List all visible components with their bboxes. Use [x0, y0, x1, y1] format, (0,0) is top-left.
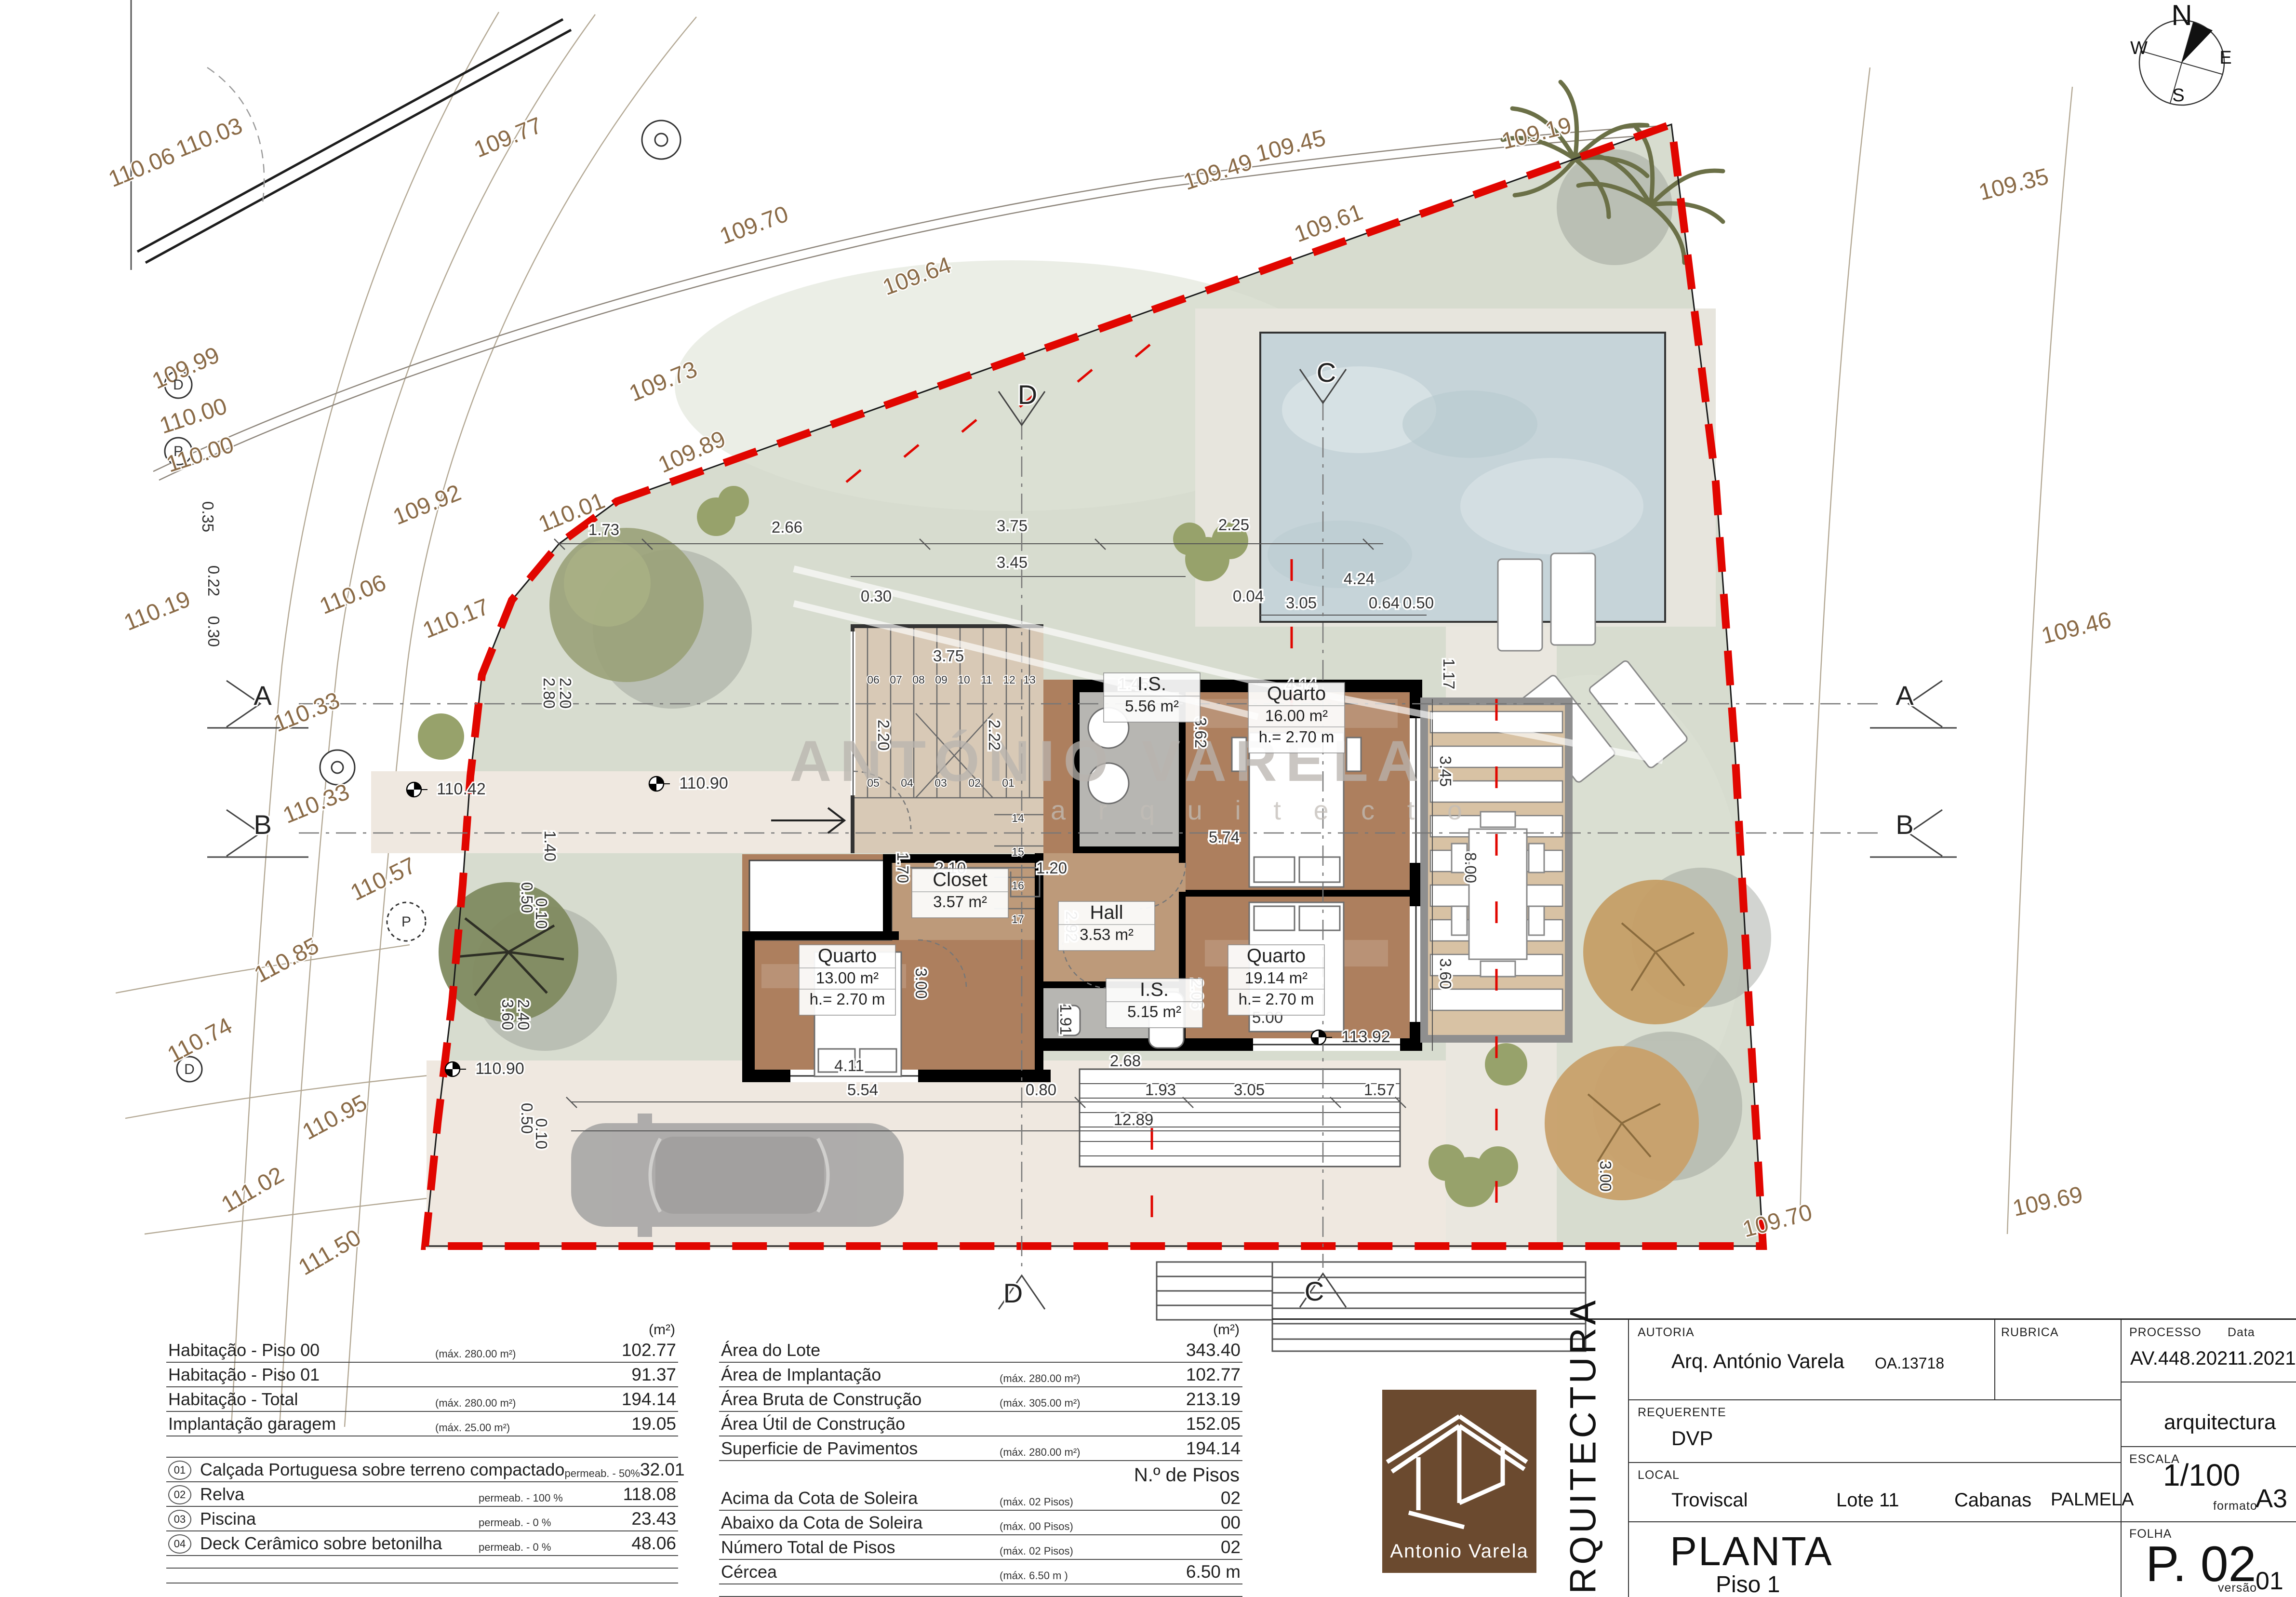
- local-value-1: Troviscal: [1671, 1490, 1748, 1511]
- row-label: Calçada Portuguesa sobre terreno compact…: [200, 1460, 564, 1480]
- dimension-label: 1.91: [1057, 1004, 1075, 1035]
- row-value: 48.06: [599, 1533, 676, 1554]
- drawing-sheet: ANTÓNIO VARELA a r q u i t e c t o 110.0…: [0, 0, 2296, 1597]
- dimension-label: 2.25: [1218, 516, 1249, 534]
- dimension-label: 3.00: [1597, 1161, 1615, 1192]
- stair-number: 01: [1002, 777, 1015, 789]
- doc-title: PLANTA: [1670, 1528, 1833, 1575]
- elevation-label: 110.19: [120, 586, 194, 636]
- section-marker-letter: D: [1003, 1278, 1023, 1308]
- room-label-line: 19.14 m²: [1245, 969, 1308, 987]
- dimension-label: 0.80: [1026, 1081, 1056, 1099]
- row-label: Deck Cerâmico sobre betonilha: [200, 1533, 479, 1554]
- table-row: 03 Piscina permeab. - 0 % 23.43: [166, 1507, 678, 1531]
- row-label: Habitação - Total: [168, 1389, 435, 1409]
- row-value: 102.77: [599, 1340, 676, 1360]
- row-label: Habitação - Piso 01: [168, 1365, 435, 1385]
- divider: [1994, 1320, 1995, 1399]
- table-row: Habitação - Piso 00 (máx. 280.00 m²) 102…: [166, 1338, 678, 1363]
- room-label-line: 5.56 m²: [1125, 697, 1179, 715]
- compass-letters: NESW: [2130, 0, 2232, 106]
- elevation-label: 109.49: [1180, 149, 1255, 195]
- dimension-label: 0.30: [205, 616, 223, 647]
- row-note: (máx. 280.00 m²): [1000, 1372, 1163, 1385]
- section-marker-letter: B: [254, 809, 271, 840]
- dimension-label: 5.54: [847, 1081, 878, 1099]
- room-label: Quarto19.14 m²h.= 2.70 m: [1228, 945, 1324, 1015]
- row-value: 6.50 m: [1163, 1562, 1241, 1582]
- dimension-label: 3.05: [1234, 1081, 1265, 1099]
- vertical-title: ARQUITECTURA: [1542, 1320, 1624, 1597]
- table-row: Habitação - Piso 01 91.37: [166, 1363, 678, 1387]
- stair-number: 03: [934, 777, 947, 789]
- row-value: 118.08: [599, 1484, 676, 1504]
- table-row: Acima da Cota de Soleira (máx. 02 Pisos)…: [719, 1486, 1242, 1511]
- requerente-value: DVP: [1671, 1427, 1713, 1450]
- dimension-label: 3.60: [499, 999, 517, 1030]
- dimension-label: 2.68: [1110, 1052, 1141, 1070]
- room-label: Closet3.57 m²: [912, 869, 1008, 918]
- room-label-line: Quarto: [1247, 945, 1306, 966]
- circle-letter: D: [184, 1061, 195, 1077]
- dimension-label: 4.11: [834, 1057, 864, 1074]
- spot-elevation: 113.92: [1341, 1028, 1390, 1046]
- room-label-line: 13.00 m²: [816, 969, 879, 987]
- escala-value: 1/100: [2163, 1457, 2240, 1493]
- local-value-4: PALMELA: [2051, 1490, 2134, 1510]
- divider: [2121, 1382, 2296, 1382]
- row-label: Superficie de Pavimentos: [721, 1438, 1000, 1459]
- dimension-label: 1.57: [1364, 1081, 1395, 1099]
- stair-number: 04: [901, 777, 913, 789]
- table-row: Superficie de Pavimentos (máx. 280.00 m²…: [719, 1436, 1242, 1461]
- local-label: LOCAL: [1638, 1468, 1680, 1482]
- svg-text:a r q u i t e c t o: a r q u i t e c t o: [1051, 795, 1475, 825]
- compass-letter: N: [2171, 0, 2192, 31]
- section-marker-letter: D: [1018, 379, 1037, 410]
- table-row: 01 Calçada Portuguesa sobre terreno comp…: [166, 1458, 678, 1482]
- row-number: 04: [168, 1534, 191, 1554]
- row-value: 194.14: [1163, 1438, 1241, 1459]
- row-label: Acima da Cota de Soleira: [721, 1488, 1000, 1508]
- room-label-line: I.S.: [1137, 673, 1166, 695]
- room-label-line: 16.00 m²: [1265, 707, 1328, 725]
- dimension-label: 2.20: [557, 678, 574, 709]
- architect-logo: Antonio Varela: [1382, 1390, 1536, 1573]
- autoria-label: AUTORIA: [1638, 1326, 1695, 1340]
- row-value: 32.01: [640, 1460, 685, 1480]
- divider: [2121, 1446, 2296, 1447]
- autoria-value: Arq. António Varela: [1671, 1350, 1844, 1373]
- table-habitacao: (m²) Habitação - Piso 00 (máx. 280.00 m²…: [166, 1322, 678, 1597]
- row-value: 343.40: [1163, 1340, 1241, 1360]
- dimension-label: 0.64: [1369, 594, 1400, 612]
- dimension-label: 1.70: [894, 852, 912, 883]
- table-lote: (m²) Área do Lote 343.40 Área de Implant…: [719, 1322, 1242, 1597]
- stair-number: 13: [1023, 673, 1036, 686]
- row-note: permeab. - 0 %: [479, 1516, 599, 1529]
- elevation-label: 110.85: [250, 933, 323, 988]
- row-label: Habitação - Piso 00: [168, 1340, 435, 1360]
- dimension-label: 0.50: [1403, 594, 1434, 612]
- room-label-line: h.= 2.70 m: [810, 990, 885, 1008]
- row-number: 01: [168, 1461, 191, 1480]
- car: [571, 1114, 904, 1237]
- stair-number: 08: [912, 673, 925, 686]
- dimension-label: 2.20: [875, 720, 893, 751]
- stair-number: 09: [935, 673, 948, 686]
- stair-number: 07: [890, 673, 902, 686]
- room-label-line: I.S.: [1140, 979, 1169, 1000]
- local-value-2: Lote 11: [1836, 1490, 1899, 1511]
- dimension-label: 0.04: [1233, 587, 1264, 605]
- row-label: Cércea: [721, 1562, 1000, 1582]
- dimension-label: 12.89: [1114, 1111, 1154, 1128]
- section-marker-letter: A: [1896, 680, 1914, 711]
- row-note: (máx. 280.00 m²): [435, 1397, 599, 1409]
- table-row: 04 Deck Cerâmico sobre betonilha permeab…: [166, 1531, 678, 1556]
- row-label: Área de Implantação: [721, 1365, 1000, 1385]
- processo-label: PROCESSO: [2129, 1326, 2202, 1340]
- stair-number: 17: [1012, 913, 1024, 926]
- room-label: Quarto13.00 m²h.= 2.70 m: [799, 945, 895, 1015]
- dimension-label: 2.80: [540, 678, 558, 709]
- room-label-line: h.= 2.70 m: [1239, 990, 1314, 1008]
- table-row: Abaixo da Cota de Soleira (máx. 00 Pisos…: [719, 1511, 1242, 1535]
- elevation-label: 110.17: [419, 594, 493, 644]
- dimension-label: 0.22: [205, 565, 223, 596]
- divider: [1628, 1320, 1629, 1597]
- data-value: 11.2021: [2228, 1348, 2296, 1369]
- logo-house-icon: [1382, 1390, 1536, 1534]
- titleblock-topline: [1272, 1318, 1352, 1320]
- section-marker-letter: A: [254, 680, 272, 711]
- formato-label: formato: [2213, 1499, 2257, 1513]
- stair-number: 14: [1012, 812, 1024, 824]
- table-row: Implantação garagem (máx. 25.00 m²) 19.0…: [166, 1412, 678, 1436]
- row-label: Área Útil de Construção: [721, 1414, 1000, 1434]
- row-note: (máx. 25.00 m²): [435, 1422, 599, 1434]
- row-value: 02: [1163, 1537, 1241, 1557]
- processo-value: AV.448.2021: [2130, 1348, 2239, 1369]
- elevation-label: 110.03: [173, 113, 246, 162]
- compass-letter: E: [2219, 48, 2231, 68]
- table-row: Área de Implantação (máx. 280.00 m²) 102…: [719, 1363, 1242, 1387]
- row-number: 02: [168, 1485, 191, 1504]
- rubrica-label: RUBRICA: [2001, 1326, 2059, 1340]
- room-label-line: Quarto: [1267, 683, 1326, 704]
- dimension-label: 0.30: [861, 587, 892, 605]
- dimension-label: 5.74: [1209, 828, 1240, 846]
- room-label-line: 5.15 m²: [1127, 1003, 1181, 1020]
- row-value: 19.05: [599, 1414, 676, 1434]
- requerente-label: REQUERENTE: [1638, 1406, 1726, 1420]
- local-value-3: Cabanas: [1954, 1490, 2031, 1511]
- row-note: (máx. 02 Pisos): [1000, 1545, 1163, 1557]
- row-note: (máx. 280.00 m²): [435, 1348, 599, 1360]
- room-label: Quarto16.00 m²h.= 2.70 m: [1248, 683, 1345, 753]
- stair-number: 11: [981, 673, 992, 686]
- elevation-label: 111.50: [294, 1225, 365, 1281]
- elevation-label: 110.00: [157, 393, 230, 439]
- logo-name: Antonio Varela: [1382, 1541, 1536, 1562]
- versao-label: versão: [2218, 1581, 2257, 1595]
- row-label: Implantação garagem: [168, 1414, 435, 1434]
- stair-number: 06: [867, 673, 880, 686]
- row-value: 23.43: [599, 1509, 676, 1529]
- table-row: 02 Relva permeab. - 100 % 118.08: [166, 1482, 678, 1507]
- circle-letter: D: [173, 377, 184, 393]
- row-note: permeab. - 0 %: [479, 1541, 599, 1554]
- dimension-label: 0.10: [533, 898, 550, 929]
- row-value: 00: [1163, 1513, 1241, 1533]
- table1-unit-header: (m²): [166, 1322, 678, 1338]
- dimension-label: 4.24: [1344, 570, 1375, 588]
- oa-number: OA.13718: [1875, 1355, 1944, 1372]
- row-value: 194.14: [599, 1389, 676, 1409]
- stair-number: 15: [1012, 845, 1024, 858]
- compass-letter: W: [2130, 38, 2148, 58]
- spot-elevation: 110.42: [437, 780, 485, 798]
- room-label: I.S.5.15 m²: [1106, 979, 1202, 1028]
- spot-elevation: 110.90: [679, 774, 728, 792]
- divider: [2121, 1320, 2122, 1597]
- elevation-label: 109.45: [1254, 125, 1328, 167]
- spot-elevation: 110.90: [475, 1060, 524, 1078]
- elevation-label: 111.02: [217, 1162, 288, 1218]
- elevation-label: 110.57: [347, 853, 420, 906]
- section-marker-letter: C: [1305, 1276, 1324, 1306]
- doc-subtitle: Piso 1: [1716, 1571, 1780, 1597]
- room-label-line: 3.53 m²: [1080, 926, 1134, 943]
- circle-letter: P: [174, 443, 183, 459]
- elevation-label: 109.70: [717, 201, 792, 249]
- room-label-line: Quarto: [818, 945, 877, 966]
- versao-value: 01: [2256, 1567, 2283, 1596]
- room-label-line: 3.57 m²: [933, 893, 987, 911]
- row-number: 03: [168, 1510, 191, 1529]
- data-label: Data: [2228, 1326, 2255, 1340]
- row-note: permeab. - 50%: [564, 1467, 640, 1480]
- section-marker-letter: C: [1317, 357, 1336, 388]
- stair-number: 16: [1012, 879, 1024, 892]
- dimension-label: 0.10: [533, 1118, 550, 1149]
- dimension-label: 3.05: [1286, 594, 1317, 612]
- dimension-label: 2.40: [515, 999, 533, 1030]
- stair-number: 02: [968, 777, 981, 789]
- elevation-label: 110.95: [298, 1090, 371, 1145]
- table-row: Área Bruta de Construção (máx. 305.00 m²…: [719, 1387, 1242, 1412]
- compass-letter: S: [2172, 85, 2184, 106]
- pisos-header: N.º de Pisos: [719, 1461, 1242, 1486]
- olive-tree: [549, 528, 704, 682]
- row-label: Relva: [200, 1484, 479, 1504]
- row-value: 02: [1163, 1488, 1241, 1508]
- row-label: Número Total de Pisos: [721, 1537, 1000, 1557]
- row-value: 102.77: [1163, 1365, 1241, 1385]
- stair-number: 12: [1003, 673, 1015, 686]
- specialty: arquitectura: [2164, 1410, 2276, 1435]
- divider: [1628, 1399, 2121, 1400]
- row-label: Área do Lote: [721, 1340, 1000, 1360]
- elevation-label: 109.46: [2039, 607, 2114, 649]
- dimension-label: 3.45: [1437, 756, 1455, 787]
- dimension-label: 1.93: [1145, 1081, 1176, 1099]
- dimension-label: 1.73: [588, 521, 619, 538]
- row-note: (máx. 00 Pisos): [1000, 1520, 1163, 1533]
- dimension-label: 3.60: [1437, 958, 1455, 989]
- stair-number: 10: [958, 673, 970, 686]
- row-note: (máx. 305.00 m²): [1000, 1397, 1163, 1409]
- table-row: Cércea (máx. 6.50 m ) 6.50 m: [719, 1560, 1242, 1584]
- dimension-label: 1.40: [541, 831, 559, 861]
- table-row: Número Total de Pisos (máx. 02 Pisos) 02: [719, 1535, 1242, 1560]
- dimension-label: 3.75: [933, 647, 964, 665]
- row-label: Área Bruta de Construção: [721, 1389, 1000, 1409]
- row-value: 152.05: [1163, 1414, 1241, 1434]
- circle-letter: P: [401, 914, 411, 930]
- elevation-label: 110.33: [270, 687, 344, 737]
- table-row: Área Útil de Construção 152.05: [719, 1412, 1242, 1436]
- dimension-label: 2.22: [986, 720, 1003, 751]
- dimension-label: 1.20: [1036, 859, 1067, 877]
- room-label-line: Closet: [933, 869, 987, 890]
- dimension-label: 2.66: [772, 518, 802, 536]
- room-label: I.S.5.56 m²: [1104, 673, 1200, 722]
- row-note: permeab. - 100 %: [479, 1492, 599, 1504]
- dimension-label: 1.17: [1440, 658, 1458, 689]
- row-value: 91.37: [599, 1365, 676, 1385]
- elevation-label: 109.77: [470, 113, 546, 163]
- elevation-label: 110.06: [105, 143, 179, 192]
- elevation-label: 109.19: [1499, 112, 1574, 154]
- row-note: (máx. 6.50 m ): [1000, 1570, 1163, 1582]
- elevation-label: 109.35: [1976, 163, 2051, 205]
- elevation-label: 110.33: [280, 779, 353, 829]
- table2-unit-header: (m²): [719, 1322, 1242, 1338]
- table-row: Área do Lote 343.40: [719, 1338, 1242, 1363]
- divider: [1628, 1521, 2296, 1522]
- dimension-label: 3.00: [912, 968, 930, 999]
- dimension-label: 0.35: [199, 501, 217, 532]
- section-marker-letter: B: [1896, 809, 1913, 840]
- row-note: (máx. 280.00 m²): [1000, 1446, 1163, 1459]
- dimension-label: 8.00: [1462, 852, 1480, 883]
- title-block: Antonio Varela ARQUITECTURA AUTORIA Arq.…: [1349, 1318, 2296, 1597]
- elevation-label: 110.06: [316, 570, 390, 619]
- stair-number: 05: [867, 777, 880, 789]
- room-label-line: Hall: [1090, 902, 1123, 923]
- row-value: 213.19: [1163, 1389, 1241, 1409]
- dimension-label: 3.45: [997, 553, 1028, 571]
- row-label: Abaixo da Cota de Soleira: [721, 1513, 1000, 1533]
- void: [749, 860, 892, 940]
- dimension-label: 3.75: [997, 517, 1028, 535]
- elevation-label: 109.92: [389, 480, 465, 530]
- room-label-line: h.= 2.70 m: [1259, 728, 1335, 746]
- formato-value: A3: [2256, 1484, 2287, 1514]
- table-row: Habitação - Total (máx. 280.00 m²) 194.1…: [166, 1387, 678, 1412]
- elevation-label: 110.74: [163, 1013, 236, 1068]
- row-note: (máx. 02 Pisos): [1000, 1496, 1163, 1508]
- row-label: Piscina: [200, 1509, 479, 1529]
- divider: [1628, 1462, 2121, 1463]
- elevation-label: 109.69: [2010, 1182, 2085, 1221]
- room-label: Hall3.53 m²: [1058, 901, 1155, 951]
